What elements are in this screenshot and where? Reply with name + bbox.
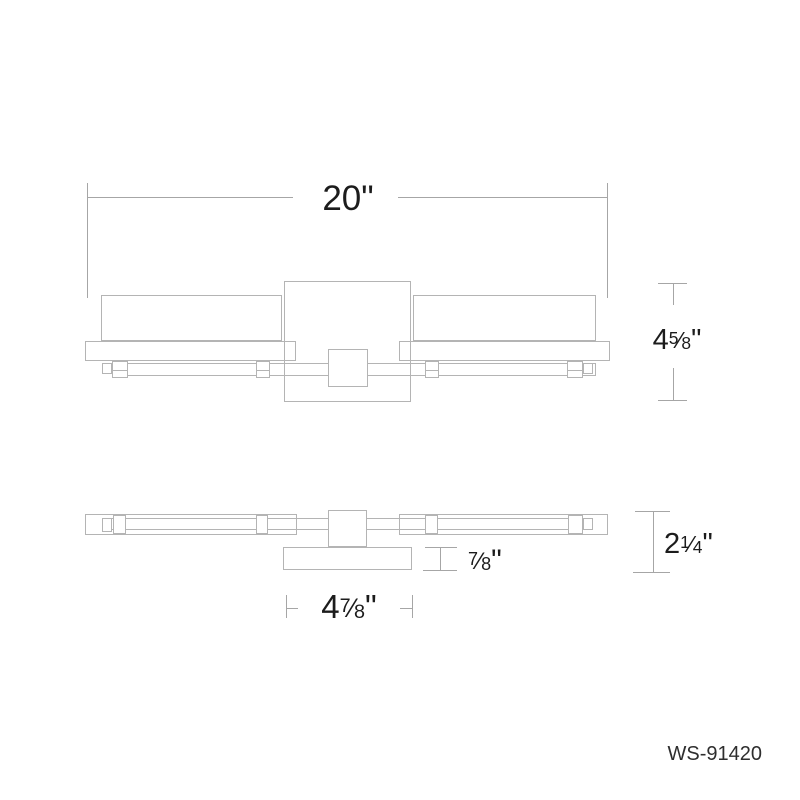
dimension-tick [286, 595, 287, 618]
dim-unit: " [365, 588, 377, 625]
dim-whole: 20 [322, 179, 361, 218]
dim-numerator: 7 [468, 549, 478, 569]
shade-holder-left [85, 341, 296, 361]
extension-line-left [87, 183, 88, 298]
extension-line-right [607, 183, 608, 298]
end-cap-left [102, 518, 112, 532]
dim-whole: 4 [321, 588, 339, 625]
bar-clip [568, 515, 583, 534]
dim-unit: " [702, 528, 712, 560]
dimension-label-overall-depth: 21⁄4" [664, 530, 713, 559]
dim-unit: " [691, 324, 701, 356]
dim-unit: " [491, 544, 502, 577]
bar-clip [113, 515, 126, 534]
dimension-line [653, 511, 654, 572]
dimension-tick [633, 572, 670, 573]
dimension-line [398, 197, 607, 198]
bar-clip [567, 361, 583, 378]
dim-denominator: 8 [481, 554, 491, 574]
model-number: WS-91420 [600, 744, 762, 764]
dim-whole: 4 [653, 324, 669, 356]
shade-holder-right [399, 341, 610, 361]
dim-whole: 2 [664, 528, 680, 560]
bar-clip [256, 515, 268, 534]
dim-denominator: 8 [681, 333, 691, 353]
bar-clip [425, 361, 439, 378]
dimension-label-backplate-depth: 7⁄8" [468, 546, 502, 576]
bar-clip [112, 361, 128, 378]
dimension-label-backplate-width: 47⁄8" [289, 590, 409, 623]
bar-clip [425, 515, 438, 534]
dim-denominator: 4 [693, 537, 703, 557]
dimension-tick [658, 400, 687, 401]
end-cap-left [102, 363, 112, 374]
center-mount-block-plan [328, 510, 367, 547]
dimension-line [673, 283, 674, 305]
end-cap-right [583, 363, 593, 374]
dimension-tick [423, 570, 457, 571]
glass-shade-left [101, 295, 282, 341]
end-cap-right [583, 518, 593, 530]
dimension-line [673, 368, 674, 400]
center-mount-block-front [328, 349, 368, 387]
technical-drawing-page: 20" 45⁄8" [0, 0, 800, 800]
dim-numerator: 5 [669, 328, 679, 348]
dim-denominator: 8 [354, 601, 365, 623]
backplate-plan [283, 547, 412, 570]
dimension-tick [412, 595, 413, 618]
dimension-line [440, 547, 441, 570]
dim-unit: " [361, 179, 373, 218]
bar-clip [256, 361, 270, 378]
dimension-tick [425, 547, 457, 548]
dimension-label-overall-width: 20" [293, 181, 403, 216]
glass-shade-right [413, 295, 596, 341]
dim-numerator: 7 [340, 595, 351, 617]
dimension-line [87, 197, 293, 198]
dimension-label-fixture-height: 45⁄8" [640, 326, 714, 355]
